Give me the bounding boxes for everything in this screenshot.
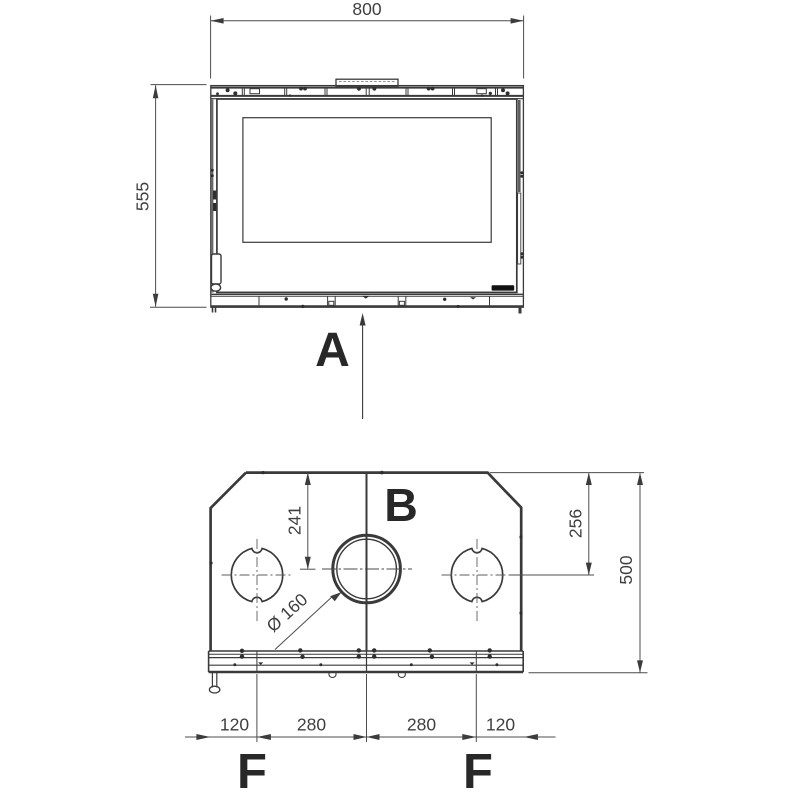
svg-text:280: 280 [407, 715, 436, 735]
svg-text:280: 280 [297, 715, 326, 735]
svg-text:241: 241 [285, 506, 305, 535]
svg-text:120: 120 [220, 715, 249, 735]
svg-text:B: B [384, 479, 418, 531]
svg-text:120: 120 [486, 715, 515, 735]
svg-text:555: 555 [133, 182, 153, 211]
svg-text:A: A [315, 324, 350, 377]
svg-text:Ø 160: Ø 160 [263, 589, 312, 636]
svg-text:F: F [463, 745, 493, 799]
svg-text:256: 256 [566, 509, 586, 538]
svg-text:500: 500 [616, 555, 636, 584]
svg-text:F: F [237, 745, 267, 799]
svg-text:800: 800 [352, 0, 381, 19]
